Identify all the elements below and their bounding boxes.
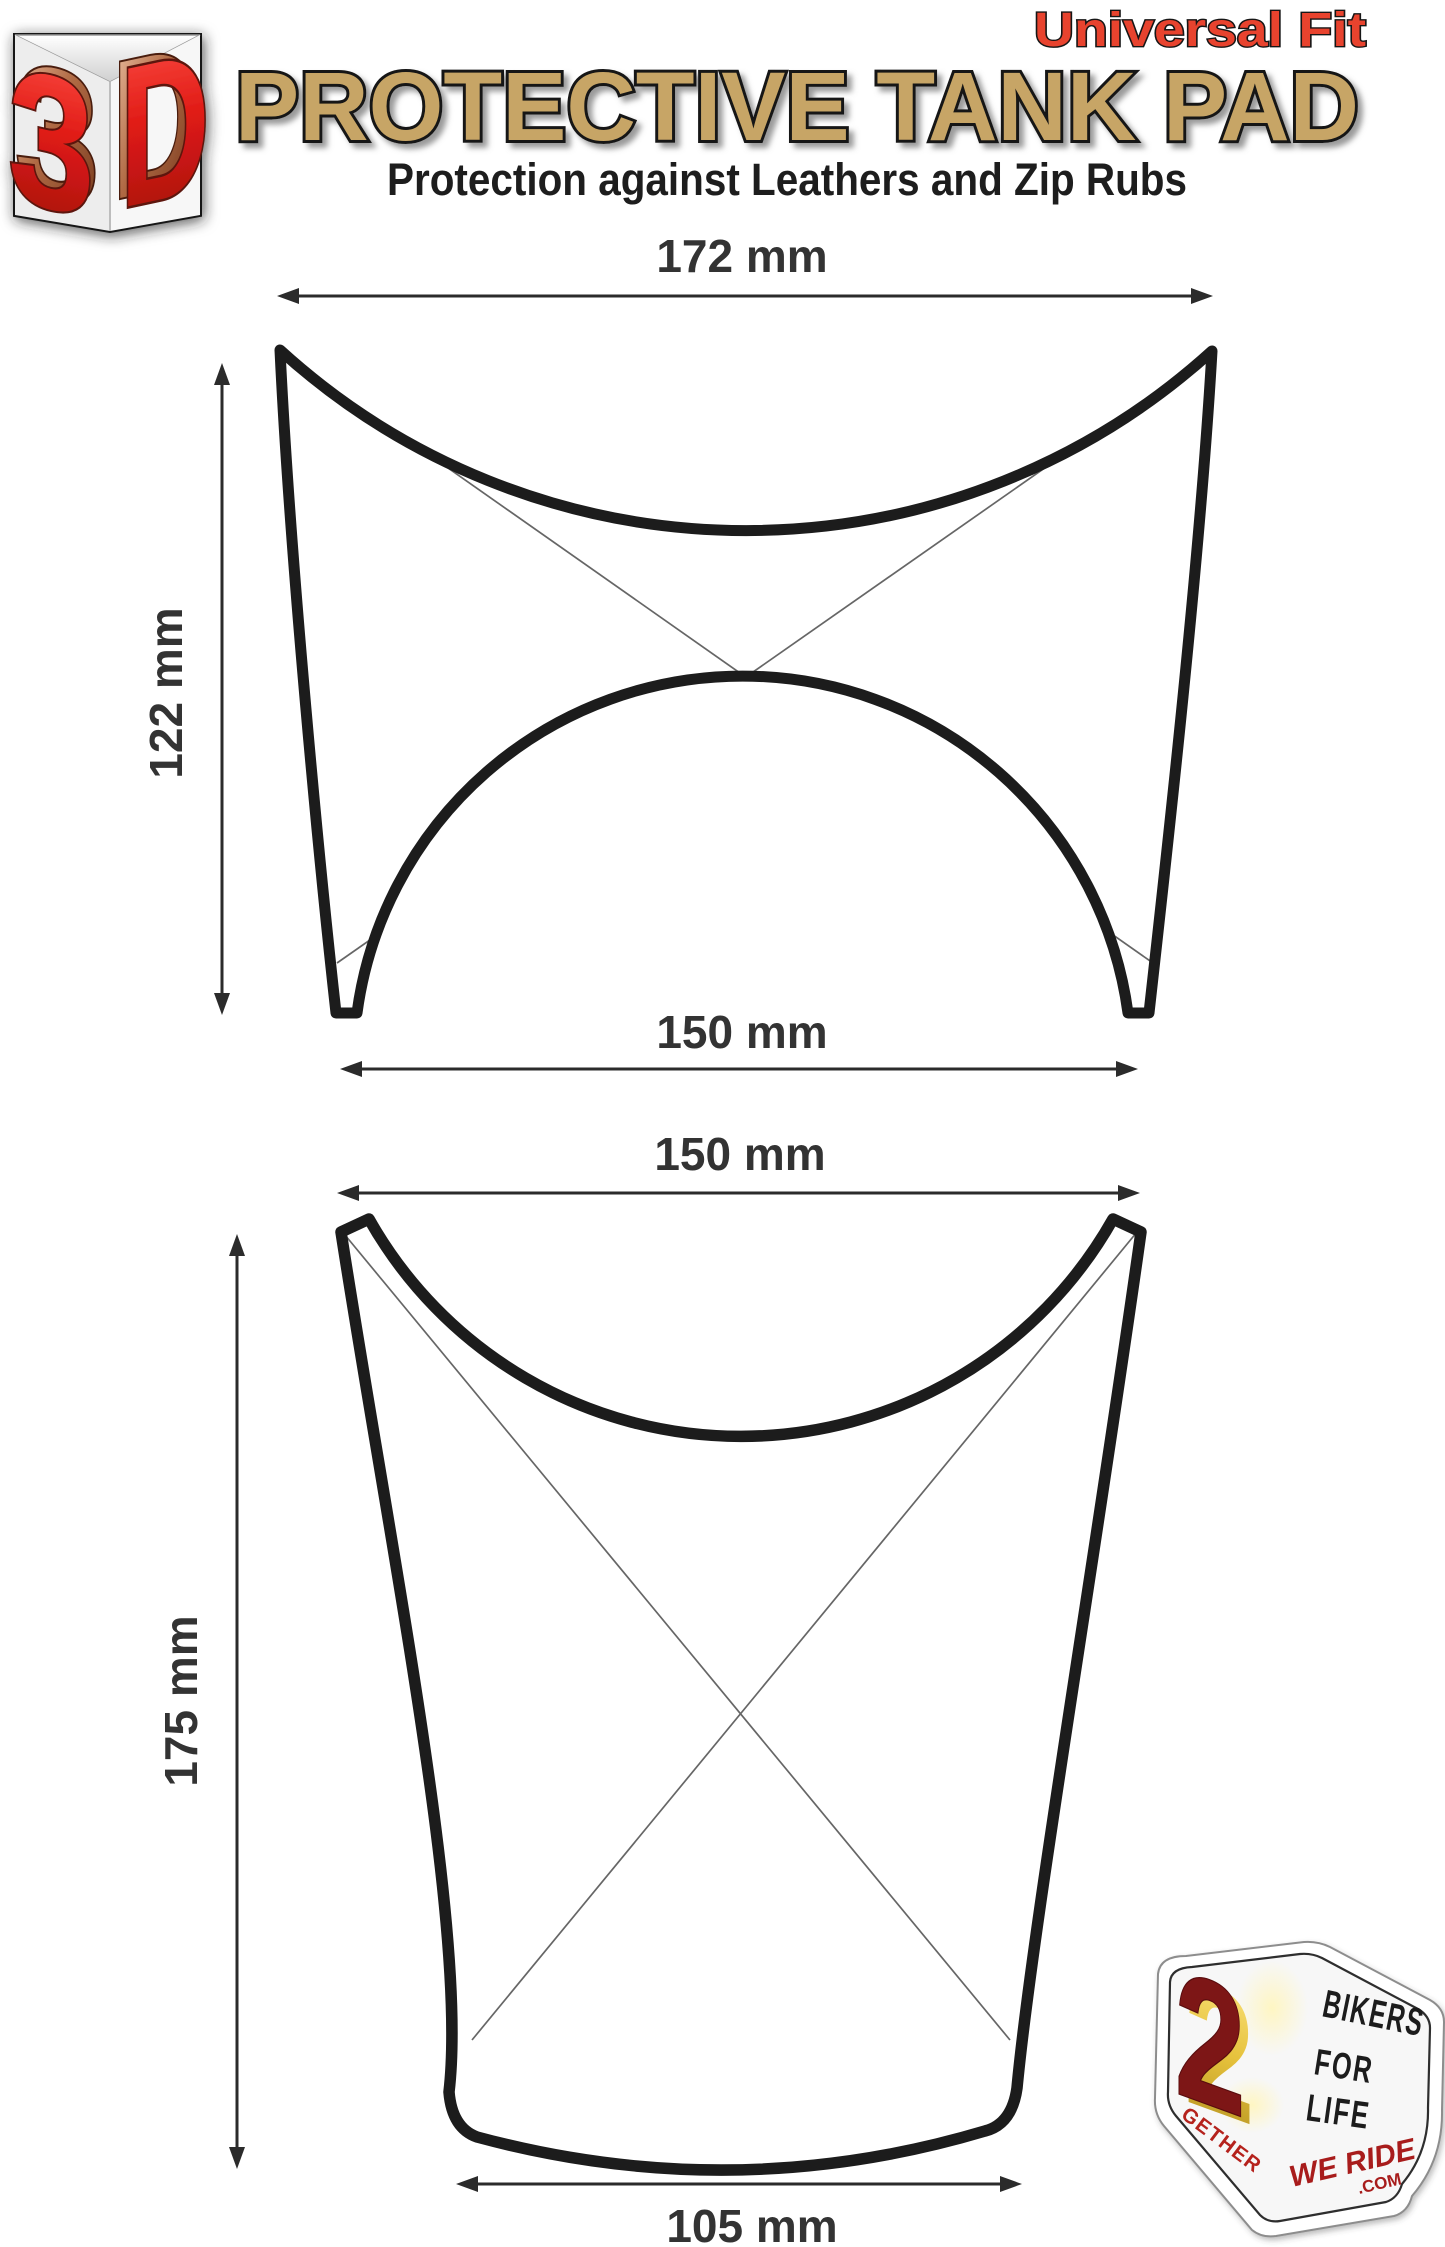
svg-text:175 mm: 175 mm [155,1615,207,1786]
svg-text:122 mm: 122 mm [140,607,192,778]
svg-text:LIFE: LIFE [1304,2086,1373,2137]
svg-text:150 mm: 150 mm [656,1006,827,1058]
svg-text:Protection against Leathers an: Protection against Leathers and Zip Rubs [387,154,1187,205]
svg-text:105 mm: 105 mm [666,2200,837,2247]
svg-text:Universal Fit: Universal Fit [1034,4,1366,57]
svg-text:172 mm: 172 mm [656,230,827,282]
svg-text:PROTECTIVE TANK PAD: PROTECTIVE TANK PAD [235,52,1359,161]
svg-text:D: D [120,9,210,251]
svg-text:3: 3 [8,27,95,259]
svg-text:150 mm: 150 mm [654,1128,825,1180]
